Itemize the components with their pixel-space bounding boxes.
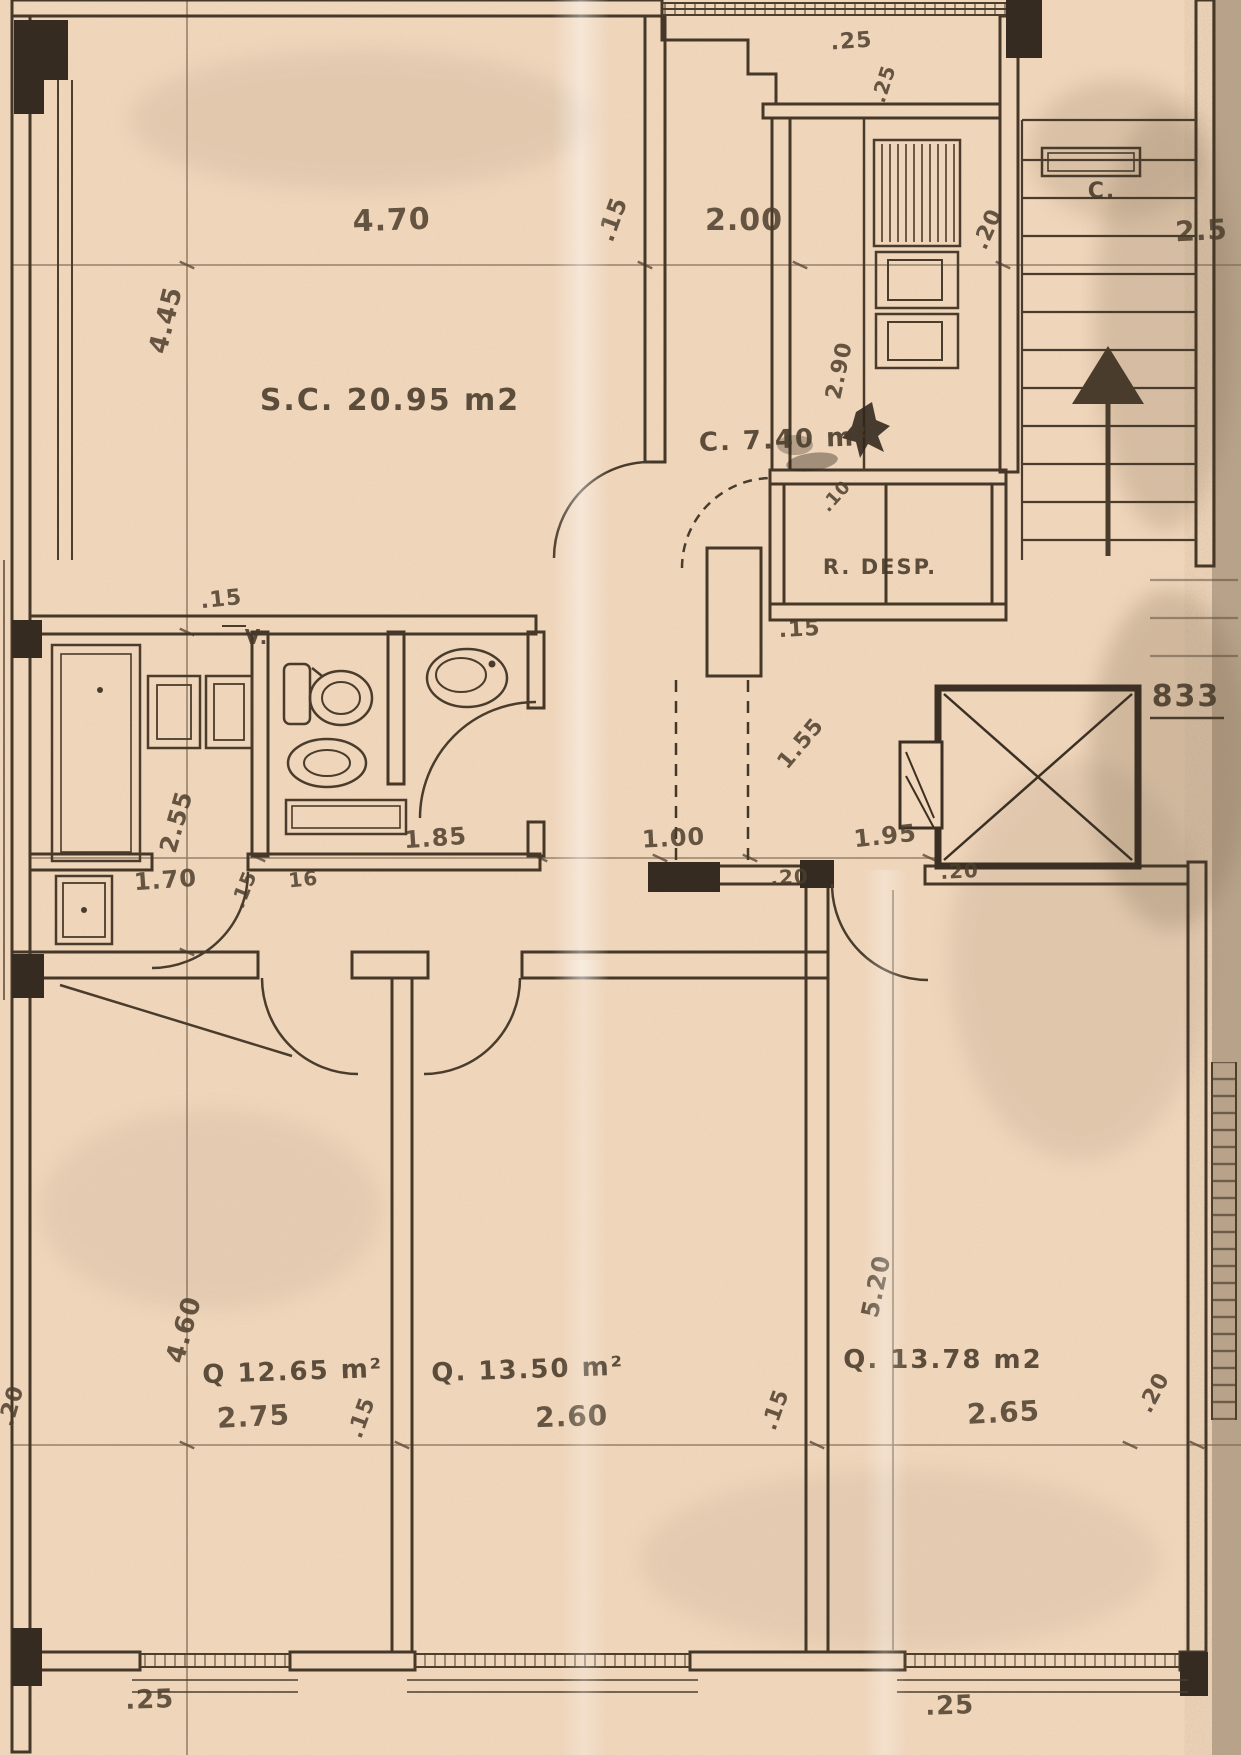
dimension-label: 2.75: [216, 1398, 291, 1435]
dimension-label: .20: [940, 858, 980, 884]
floor-plan-sheet: S.C. 20.95 m2 C. 7.40 m² C. R. DESP. Q 1…: [0, 0, 1241, 1755]
dimension-label: 1.70: [133, 864, 198, 896]
floor-plan-svg: S.C. 20.95 m2 C. 7.40 m² C. R. DESP. Q 1…: [0, 0, 1241, 1755]
dimension-label: .25: [925, 1690, 975, 1722]
dimension-label: 1.85: [403, 822, 468, 854]
dimension-label: 2.5: [1174, 213, 1228, 249]
room-label-bedroom-1: Q 12.65 m²: [202, 1354, 384, 1390]
dimension-label: 2.00: [705, 203, 783, 238]
dimension-label: 2.65: [966, 1394, 1041, 1431]
room-label-closet: C.: [1088, 179, 1117, 204]
dimension-label: 4.70: [352, 202, 431, 240]
dimension-label: 1.00: [641, 822, 706, 853]
dimension-label: .15: [778, 616, 821, 643]
dimension-label: .20: [770, 864, 810, 890]
room-label-living: S.C. 20.95 m2: [260, 383, 520, 418]
vent-label: V.: [245, 625, 270, 649]
dimension-label: .15: [199, 585, 243, 614]
dimension-label: .25: [830, 28, 874, 56]
right-window: [1212, 1062, 1236, 1420]
dimension-label: 16: [287, 866, 319, 893]
room-label-pantry: R. DESP.: [823, 555, 937, 579]
sheet-number: 833: [1152, 679, 1221, 714]
room-label-kitchen: C. 7.40 m²: [698, 422, 869, 458]
dimension-label: .25: [125, 1684, 175, 1716]
